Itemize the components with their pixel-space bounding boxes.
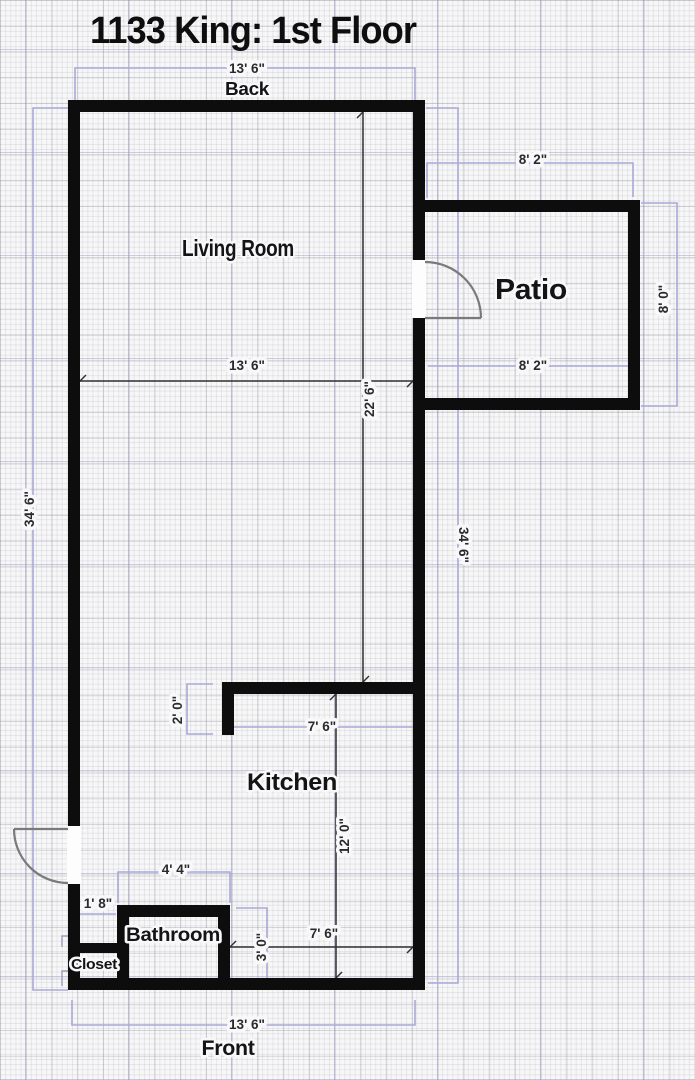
dim-label-patio-height: 8' 0" [656,285,671,313]
wall-bathroom-right [218,905,230,990]
page-title: 1133 King: 1st Floor [90,10,417,52]
dim-line-left-height [33,108,68,990]
wall-patio-top [425,200,640,212]
dim-label-closet-offset: 1' 8" [84,896,112,911]
wall-kitchen-top [222,682,425,694]
wall-main-left-lower [68,884,80,990]
dim-label-kitchen-entry: 2' 0" [170,696,185,724]
wall-main-right-lower [413,318,425,990]
dim-label-living-width: 13' 6" [229,358,265,373]
room-label-living-room: Living Room [182,235,294,261]
dim-label-left-height: 34' 6" [22,491,37,527]
dim-label-patio-bottom: 8' 2" [519,358,547,373]
wall-main-right-upper [413,100,425,260]
floor-plan-canvas: 13' 6" 13' 6" 22' 6" 34' 6" 34' 6" 8' 2"… [0,0,695,1080]
dim-label-hall-width: 7' 6" [310,926,338,941]
wall-patio-bottom [425,398,638,410]
room-label-bathroom: Bathroom [126,925,220,946]
dim-label-front-width: 13' 6" [229,1017,265,1032]
patio-door-opening [412,260,426,318]
front-door-opening [67,826,81,884]
dim-label-bathroom-height: 3' 0" [254,933,269,961]
dim-label-patio-top: 8' 2" [519,152,547,167]
room-label-kitchen: Kitchen [247,769,337,796]
dim-label-living-height: 22' 6" [362,381,377,417]
dim-label-kitchen-height: 12' 0" [337,818,352,854]
wall-closet-divider [68,943,129,953]
dim-label-bathroom-width: 4' 4" [162,862,190,877]
wall-main-top [68,100,425,112]
wall-main-left-upper [68,100,80,826]
wall-kitchen-stub [222,682,234,735]
patio-door-arc [425,262,481,318]
dim-label-right-height: 34' 6" [456,527,471,563]
dim-line-kitchen-entry [187,684,213,734]
wall-patio-right [628,200,640,410]
dim-label-kitchen-width: 7' 6" [308,719,336,734]
dim-line-right-height [426,108,458,983]
front-door-arc [14,829,68,883]
wall-bathroom-top [117,905,230,917]
room-label-closet: Closet [71,957,118,973]
floor-plan-drawing: 13' 6" 13' 6" 22' 6" 34' 6" 34' 6" 8' 2"… [0,0,695,1080]
room-label-patio: Patio [495,274,567,306]
walls [68,100,640,990]
orientation-label-front: Front [202,1037,255,1060]
dim-label-back-width: 13' 6" [229,61,265,76]
orientation-label-back: Back [225,79,270,99]
